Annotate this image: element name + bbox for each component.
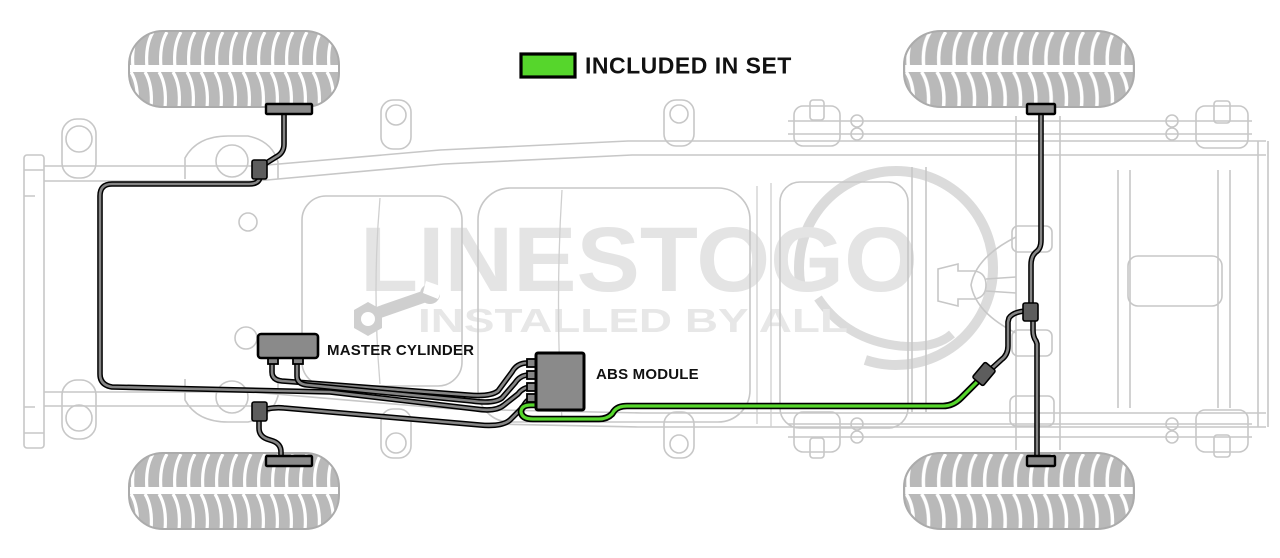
rear-axle-line-lower [1033,318,1037,457]
tire-rear-upper [903,30,1135,108]
master-cylinder-label: MASTER CYLINDER [327,342,474,359]
wheel-cylinder-front-lower [266,456,312,466]
diagram-svg: LINESTOGO INSTALLED BY ALL [0,0,1280,558]
tire-front-upper [128,30,340,108]
watermark-tagline-text: INSTALLED BY ALL [418,302,848,339]
wheel-cylinder-front-upper [266,104,312,114]
fitting-rear-tee [1023,303,1038,321]
watermark-brand-text: LINESTOGO [360,209,918,311]
wheel-cylinder-rear-upper [1027,104,1055,114]
legend-label: INCLUDED IN SET [585,53,792,79]
abs-module-box [536,353,584,410]
fitting-front-lower [252,402,267,421]
brake-line-diagram-canvas: LINESTOGO INSTALLED BY ALL [0,0,1280,558]
front-wheel-hose-lower [259,420,281,457]
wheel-cylinder-rear-lower [1027,456,1055,466]
legend: INCLUDED IN SET [521,53,792,79]
tire-rear-lower [903,452,1135,530]
fitting-front-upper [252,160,267,179]
abs-module-label: ABS MODULE [596,366,699,383]
legend-swatch [521,54,575,77]
master-cylinder-box [258,334,318,358]
